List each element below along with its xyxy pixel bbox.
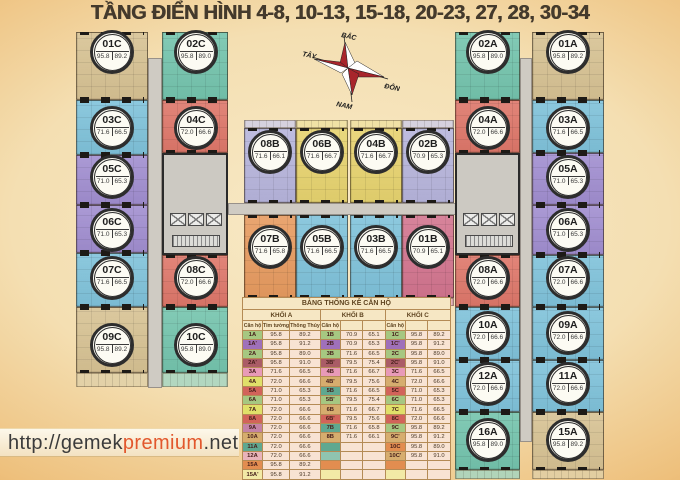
unit-label: 15A	[549, 427, 587, 438]
table-cell: 1A'	[243, 340, 263, 349]
unit-area-thong-thuy: 66.1	[271, 152, 286, 160]
table-cell: 71.6	[405, 405, 428, 414]
unit-badge-08B: 08B71.666.1	[248, 130, 292, 174]
table-cell: BẢNG THỐNG KÊ CĂN HỘ	[243, 298, 451, 310]
unit-badge-01B: 01B70.965.1	[406, 225, 450, 269]
unit-label: 03C	[93, 115, 131, 126]
unit-badge-04C: 04C72.066.6	[174, 106, 218, 150]
unit-area-thong-thuy: 66.6	[489, 384, 504, 392]
table-cell	[340, 451, 363, 460]
corridor-right-wing	[520, 58, 532, 442]
unit-label: 04A	[469, 115, 507, 126]
table-cell: 15A	[243, 461, 263, 470]
table-cell: 66.6	[290, 414, 321, 423]
table-cell: 7C	[385, 405, 405, 414]
unit-area-thong-thuy: 66.5	[377, 247, 392, 255]
unit-badge-09C: 09C95.889.2	[90, 323, 134, 367]
table-cell: Thông Thủy	[290, 321, 321, 331]
unit-label: 12A	[469, 371, 507, 382]
table-cell: 3A	[243, 368, 263, 377]
table-cell: 95.8	[263, 331, 290, 340]
table-cell: 4B	[320, 368, 340, 377]
table-cell: 9C'	[385, 433, 405, 442]
table-cell: 95.8	[405, 451, 428, 460]
unit-label: 07C	[93, 265, 131, 276]
stairs-icon	[172, 235, 220, 247]
balcony	[76, 373, 148, 387]
unit-area-thong-thuy: 66.6	[197, 128, 212, 136]
unit-badge-02B: 02B70.965.3	[406, 130, 450, 174]
table-cell: 89.0	[428, 442, 451, 451]
table-cell: 72.0	[405, 414, 428, 423]
table-cell: 95.8	[405, 433, 428, 442]
unit-label: 08B	[251, 139, 289, 150]
unit-badge-08C: 08C72.066.6	[174, 256, 218, 300]
table-cell: 6B'	[320, 414, 340, 423]
table-cell: 5A	[243, 386, 263, 395]
unit-area-thong-thuy: 66.5	[113, 278, 128, 286]
table-cell: 72.0	[263, 377, 290, 386]
elevator-icon	[481, 213, 497, 226]
table-cell: 65.3	[290, 386, 321, 395]
table-cell: 89.2	[290, 331, 321, 340]
table-cell: 91.2	[290, 470, 321, 479]
table-cell	[405, 321, 428, 331]
table-cell: 6B	[320, 405, 340, 414]
table-row: 3A71.666.54B71.666.73C71.666.5	[243, 368, 451, 377]
table-cell: 70.9	[340, 331, 363, 340]
table-cell: 89.2	[290, 461, 321, 470]
unit-badge-10C: 10C95.889.0	[174, 323, 218, 367]
unit-area-tim-tuong: 71.0	[97, 230, 113, 238]
table-cell: 5B'	[320, 396, 340, 405]
unit-label: 11A	[549, 371, 587, 382]
unit-area-thong-thuy: 66.7	[323, 152, 338, 160]
unit-badge-07A: 07A72.066.6	[546, 256, 590, 300]
unit-label: 10A	[469, 320, 507, 331]
unit-area-tim-tuong: 71.6	[361, 152, 377, 160]
unit-area-tim-tuong: 70.9	[413, 152, 429, 160]
table-cell	[340, 442, 363, 451]
unit-badge-03C: 03C71.666.5	[90, 106, 134, 150]
table-cell: Tim tường	[263, 321, 290, 331]
table-cell: 91.2	[290, 340, 321, 349]
unit-label: 05A	[549, 164, 587, 175]
unit-badge-05A: 05A71.065.3	[546, 155, 590, 199]
unit-badge-01A: 01A95.889.2	[546, 30, 590, 74]
unit-area-tim-tuong: 71.0	[97, 177, 113, 185]
unit-area-tim-tuong: 95.8	[181, 52, 197, 60]
table-cell: KHỐI A	[243, 310, 321, 321]
table-cell: 79.5	[340, 377, 363, 386]
unit-label: 01A	[549, 39, 587, 50]
table-cell: 66.5	[428, 405, 451, 414]
unit-area-tim-tuong: 72.0	[473, 128, 489, 136]
unit-badge-16A: 16A95.889.0	[466, 418, 510, 462]
unit-badge-03B: 03B71.666.5	[354, 225, 398, 269]
table-cell: 89.0	[290, 349, 321, 358]
table-cell: Căn hộ	[385, 321, 405, 331]
unit-area-thong-thuy: 66.6	[489, 278, 504, 286]
table-cell: 75.4	[363, 358, 386, 367]
table-cell: 91.2	[428, 433, 451, 442]
unit-badge-07C: 07C71.666.5	[90, 256, 134, 300]
table-cell: 95.8	[405, 349, 428, 358]
unit-badge-09A: 09A72.066.6	[546, 311, 590, 355]
table-cell	[340, 461, 363, 470]
table-cell: 72.0	[263, 433, 290, 442]
unit-area-thong-thuy: 66.6	[489, 128, 504, 136]
table-cell: 1C	[385, 331, 405, 340]
floor-plan: TẦNG ĐIỂN HÌNH 4-8, 10-13, 15-18, 20-23,…	[0, 0, 680, 480]
unit-badge-04B: 04B71.666.7	[354, 130, 398, 174]
watermark-highlight: premium	[123, 432, 204, 454]
table-cell: 66.6	[290, 451, 321, 460]
table-cell	[363, 321, 386, 331]
unit-area-thong-thuy: 66.7	[377, 152, 392, 160]
table-cell: 8B	[320, 433, 340, 442]
table-cell: 6C	[385, 396, 405, 405]
table-cell: 95.8	[263, 340, 290, 349]
compass-south-label: NAM	[336, 101, 353, 110]
unit-label: 04C	[177, 115, 215, 126]
unit-label: 03B	[357, 234, 395, 245]
unit-area-tim-tuong: 72.0	[553, 278, 569, 286]
table-cell: 89.0	[428, 349, 451, 358]
unit-area-thong-thuy: 66.6	[197, 278, 212, 286]
unit-badge-15A: 15A95.889.2	[546, 418, 590, 462]
table-cell: 71.6	[340, 368, 363, 377]
balcony	[162, 373, 228, 387]
table-cell: 72.0	[263, 451, 290, 460]
table-cell: 66.7	[363, 405, 386, 414]
page-title: TẦNG ĐIỂN HÌNH 4-8, 10-13, 15-18, 20-23,…	[0, 2, 680, 25]
unit-area-thong-thuy: 66.6	[569, 278, 584, 286]
table-cell: 65.3	[428, 386, 451, 395]
table-cell: 71.6	[340, 349, 363, 358]
table-cell	[320, 461, 340, 470]
table-row: 1A95.889.21B70.965.11C95.889.2	[243, 331, 451, 340]
compass-east-label: ĐÔNG	[384, 81, 400, 94]
unit-label: 09A	[549, 320, 587, 331]
table-cell: 72.0	[263, 423, 290, 432]
table-row: 1A'95.891.22B70.965.31C'95.891.2	[243, 340, 451, 349]
table-cell: 10C	[385, 442, 405, 451]
table-cell: 95.8	[405, 423, 428, 432]
table-cell: 11A	[243, 442, 263, 451]
unit-badge-10A: 10A72.066.6	[466, 311, 510, 355]
table-cell: 71.0	[405, 396, 428, 405]
unit-badge-04A: 04A72.066.6	[466, 106, 510, 150]
table-cell	[363, 461, 386, 470]
watermark-band: http://gemekpremium.net	[0, 428, 239, 457]
unit-area-thong-thuy: 65.8	[271, 247, 286, 255]
core-right	[455, 153, 520, 255]
table-cell: 89.2	[428, 331, 451, 340]
elevator-icon	[499, 213, 515, 226]
table-cell: 91.2	[428, 340, 451, 349]
table-cell	[340, 321, 363, 331]
unit-area-tim-tuong: 95.8	[97, 345, 113, 353]
unit-area-thong-thuy: 66.5	[113, 128, 128, 136]
table-cell: 71.0	[263, 386, 290, 395]
table-cell: 66.6	[290, 377, 321, 386]
table-cell: 65.3	[290, 396, 321, 405]
stats-table: BẢNG THỐNG KÊ CĂN HỘKHỐI AKHỐI BKHỐI CCă…	[242, 297, 451, 480]
table-row: 11A72.066.610C95.889.0	[243, 442, 451, 451]
table-cell: 89.2	[428, 423, 451, 432]
table-row: 7A72.066.66B71.666.77C71.666.5	[243, 405, 451, 414]
table-cell: 71.6	[405, 368, 428, 377]
table-cell: 75.4	[363, 396, 386, 405]
table-cell: 71.6	[340, 423, 363, 432]
table-row: 9A72.066.67B71.665.89C95.889.2	[243, 423, 451, 432]
table-cell: 91.0	[290, 358, 321, 367]
balcony	[244, 120, 296, 128]
unit-badge-06B: 06B71.666.7	[300, 130, 344, 174]
table-cell: 66.5	[363, 349, 386, 358]
table-cell: 12A	[243, 451, 263, 460]
table-row: 10A72.066.68B71.666.19C'95.891.2	[243, 433, 451, 442]
stairs-icon	[465, 235, 513, 247]
table-cell	[405, 470, 428, 479]
unit-label: 08C	[177, 265, 215, 276]
unit-area-thong-thuy: 66.6	[489, 333, 504, 341]
compass-north-label: BẮC	[341, 30, 359, 42]
unit-area-thong-thuy: 66.5	[569, 128, 584, 136]
table-cell: 95.8	[405, 358, 428, 367]
unit-label: 01B	[409, 234, 447, 245]
table-cell: 5B	[320, 386, 340, 395]
table-cell: 10C'	[385, 451, 405, 460]
table-cell: 66.6	[290, 433, 321, 442]
unit-badge-06A: 06A71.065.3	[546, 208, 590, 252]
table-cell: KHỐI C	[385, 310, 450, 321]
unit-area-tim-tuong: 71.6	[97, 278, 113, 286]
table-cell: 3C	[385, 368, 405, 377]
table-cell	[363, 451, 386, 460]
table-cell: KHỐI B	[320, 310, 385, 321]
table-cell: Căn hộ	[320, 321, 340, 331]
table-cell: 95.8	[405, 331, 428, 340]
unit-area-thong-thuy: 89.0	[197, 345, 212, 353]
table-cell: 71.0	[405, 386, 428, 395]
unit-label: 03A	[549, 115, 587, 126]
unit-label: 05C	[93, 164, 131, 175]
table-cell: 4B'	[320, 377, 340, 386]
elevator-icon	[206, 213, 222, 226]
table-row: 2A'95.891.03B'79.575.42C'95.891.0	[243, 358, 451, 367]
table-cell: 75.6	[363, 377, 386, 386]
table-cell: 2A	[243, 349, 263, 358]
unit-label: 02A	[469, 39, 507, 50]
unit-area-thong-thuy: 89.2	[569, 440, 584, 448]
balcony	[350, 120, 402, 128]
unit-area-tim-tuong: 72.0	[553, 384, 569, 392]
table-cell: 4A	[243, 377, 263, 386]
table-cell: 66.7	[363, 368, 386, 377]
table-subheader-row: Căn hộTim tườngThông ThủyCăn hộCăn hộ	[243, 321, 451, 331]
table-cell	[428, 470, 451, 479]
table-cell: 66.6	[290, 442, 321, 451]
table-cell: 2B	[320, 340, 340, 349]
unit-area-thong-thuy: 89.2	[569, 52, 584, 60]
table-cell: 66.6	[428, 414, 451, 423]
unit-area-tim-tuong: 71.6	[307, 152, 323, 160]
table-cell: 72.0	[263, 405, 290, 414]
unit-area-tim-tuong: 72.0	[553, 333, 569, 341]
unit-area-tim-tuong: 95.8	[473, 440, 489, 448]
balcony	[532, 470, 604, 479]
table-cell	[428, 321, 451, 331]
elevator-icon	[170, 213, 186, 226]
table-cell: 66.5	[290, 368, 321, 377]
table-cell: 15A'	[243, 470, 263, 479]
unit-badge-03A: 03A71.666.5	[546, 106, 590, 150]
table-row: 15A'95.891.2	[243, 470, 451, 479]
unit-area-thong-thuy: 65.3	[113, 230, 128, 238]
table-cell: 3B	[320, 349, 340, 358]
table-cell: 71.6	[340, 433, 363, 442]
table-cell: 72.0	[263, 442, 290, 451]
table-cell: 9A	[243, 423, 263, 432]
table-cell: 66.6	[428, 377, 451, 386]
table-cell	[363, 442, 386, 451]
table-cell: 91.0	[428, 451, 451, 460]
unit-area-thong-thuy: 65.3	[569, 230, 584, 238]
unit-area-thong-thuy: 65.3	[113, 177, 128, 185]
unit-badge-11A: 11A72.066.6	[546, 362, 590, 406]
table-cell: 95.8	[405, 340, 428, 349]
unit-area-tim-tuong: 71.6	[255, 247, 271, 255]
table-cell: 7B	[320, 423, 340, 432]
unit-label: 04B	[357, 139, 395, 150]
unit-area-tim-tuong: 71.0	[553, 230, 569, 238]
table-cell: 95.8	[263, 349, 290, 358]
table-row: 4A72.066.64B'79.575.64C72.066.6	[243, 377, 451, 386]
table-title-row: BẢNG THỐNG KÊ CĂN HỘ	[243, 298, 451, 310]
watermark-prefix: http://gemek	[8, 432, 123, 454]
unit-area-thong-thuy: 89.2	[113, 345, 128, 353]
table-cell: 2C	[385, 349, 405, 358]
table-cell: 6A	[243, 396, 263, 405]
table-cell	[385, 470, 405, 479]
core-left	[162, 153, 228, 255]
unit-area-tim-tuong: 72.0	[181, 278, 197, 286]
unit-area-thong-thuy: 66.6	[569, 333, 584, 341]
table-row: 2A95.889.03B71.666.52C95.889.0	[243, 349, 451, 358]
table-cell: Căn hộ	[243, 321, 263, 331]
unit-area-tim-tuong: 95.8	[181, 345, 197, 353]
table-cell: 66.5	[428, 368, 451, 377]
unit-area-tim-tuong: 71.6	[361, 247, 377, 255]
unit-label: 02B	[409, 139, 447, 150]
unit-badge-02A: 02A95.889.0	[466, 30, 510, 74]
table-cell: 65.3	[363, 340, 386, 349]
table-cell: 1C'	[385, 340, 405, 349]
table-cell	[363, 470, 386, 479]
table-cell: 71.6	[340, 405, 363, 414]
table-cell: 10A	[243, 433, 263, 442]
table-cell: 79.5	[340, 396, 363, 405]
table-cell: 75.6	[363, 414, 386, 423]
table-cell: 65.8	[363, 423, 386, 432]
unit-area-tim-tuong: 70.9	[413, 247, 429, 255]
table-cell: 95.8	[405, 442, 428, 451]
unit-area-thong-thuy: 89.0	[489, 440, 504, 448]
corridor-center	[228, 203, 458, 215]
table-cell: 66.6	[290, 423, 321, 432]
unit-badge-12A: 12A72.066.6	[466, 362, 510, 406]
unit-area-thong-thuy: 66.6	[569, 384, 584, 392]
unit-badge-07B: 07B71.665.8	[248, 225, 292, 269]
unit-area-tim-tuong: 72.0	[473, 384, 489, 392]
table-cell: 72.0	[405, 377, 428, 386]
unit-area-thong-thuy: 89.0	[489, 52, 504, 60]
table-row: 12A72.066.610C'95.891.0	[243, 451, 451, 460]
table-cell: 66.1	[363, 433, 386, 442]
table-cell: 71.6	[263, 368, 290, 377]
balcony	[402, 120, 454, 128]
table-cell: 9C	[385, 423, 405, 432]
unit-area-tim-tuong: 71.6	[553, 128, 569, 136]
table-row: 8A72.066.66B'79.575.68C72.066.6	[243, 414, 451, 423]
table-cell: 4C	[385, 377, 405, 386]
balcony	[455, 470, 520, 479]
unit-label: 09C	[93, 332, 131, 343]
unit-area-thong-thuy: 89.0	[197, 52, 212, 60]
unit-area-thong-thuy: 66.5	[323, 247, 338, 255]
unit-area-tim-tuong: 95.8	[553, 52, 569, 60]
table-row: 5A71.065.35B71.666.55C71.065.3	[243, 386, 451, 395]
unit-label: 06C	[93, 217, 131, 228]
table-cell: 70.9	[340, 340, 363, 349]
unit-area-tim-tuong: 71.6	[255, 152, 271, 160]
table-cell: 95.8	[263, 461, 290, 470]
unit-badge-06C: 06C71.065.3	[90, 208, 134, 252]
unit-area-tim-tuong: 71.6	[307, 247, 323, 255]
table-cell: 79.5	[340, 358, 363, 367]
table-cell	[385, 461, 405, 470]
unit-badge-08A: 08A72.066.6	[466, 256, 510, 300]
unit-area-tim-tuong: 71.6	[97, 128, 113, 136]
table-cell: 1B	[320, 331, 340, 340]
table-cell: 2A'	[243, 358, 263, 367]
table-cell: 1A	[243, 331, 263, 340]
unit-area-thong-thuy: 65.1	[429, 247, 444, 255]
table-cell: 66.6	[290, 405, 321, 414]
unit-label: 06B	[303, 139, 341, 150]
unit-badge-05C: 05C71.065.3	[90, 155, 134, 199]
table-cell: 7A	[243, 405, 263, 414]
table-cell: 95.8	[263, 358, 290, 367]
watermark-link[interactable]: http://gemekpremium.net	[8, 432, 238, 455]
unit-label: 07B	[251, 234, 289, 245]
corridor-left-wing	[148, 58, 162, 388]
unit-label: 10C	[177, 332, 215, 343]
table-cell	[340, 470, 363, 479]
unit-label: 05B	[303, 234, 341, 245]
elevator-icon	[188, 213, 204, 226]
table-cell	[320, 470, 340, 479]
table-cell	[428, 461, 451, 470]
table-cell: 3B'	[320, 358, 340, 367]
unit-area-tim-tuong: 72.0	[473, 278, 489, 286]
unit-area-tim-tuong: 71.0	[553, 177, 569, 185]
unit-area-thong-thuy: 89.2	[113, 52, 128, 60]
table-cell: 5C	[385, 386, 405, 395]
unit-label: 01C	[93, 39, 131, 50]
